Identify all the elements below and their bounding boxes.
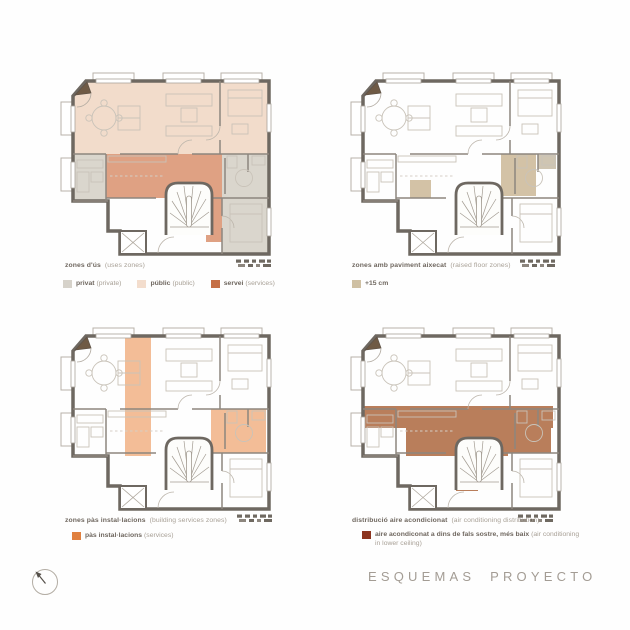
- caption-subtext: (air conditioning distribution): [451, 517, 539, 524]
- public-swatch: [137, 280, 146, 288]
- scale-bar: [520, 259, 556, 268]
- scale-bar: [237, 514, 273, 523]
- privat-swatch: [63, 280, 72, 288]
- floor-plan-building-services: [60, 321, 282, 521]
- panel-caption: zones d'ús (uses zones): [65, 262, 145, 269]
- servei-swatch: [211, 280, 220, 288]
- legend-label: pàs instal·lacions: [85, 532, 142, 539]
- legend-sublabel: (services): [144, 532, 173, 539]
- panel-caption: distribució aire acondicionat (air condi…: [352, 517, 564, 524]
- floor-plan-raised-floor: [350, 66, 572, 266]
- caption-subtext: (building services zones): [150, 517, 227, 524]
- legend-item-pas-installacions: pàs instal·lacions(services): [72, 532, 174, 540]
- legend-label: servei: [224, 280, 244, 287]
- services-swatch: [72, 532, 81, 540]
- legend-uses: privat(private) públic(public) servei(se…: [63, 280, 275, 288]
- floor-plan-ac-distribution: [350, 321, 572, 521]
- ac-swatch: [362, 531, 371, 539]
- drawing-sheet: zones d'ús (uses zones) privat(private) …: [0, 0, 630, 630]
- sheet-title: ESQUEMAS PROYECTO: [368, 569, 596, 584]
- legend-raised-floor: +15 cm: [352, 280, 388, 288]
- scale-bar: [236, 259, 272, 268]
- raised-floor-swatch: [352, 280, 361, 288]
- floor-plan-uses-zones: [60, 66, 282, 266]
- legend-label: +15 cm: [365, 280, 388, 287]
- legend-label: privat: [76, 280, 95, 287]
- legend-label: aire acondiconat a dins de fals sostre, …: [375, 531, 529, 538]
- north-arrow-icon: [27, 565, 63, 601]
- legend-sublabel: (private): [97, 280, 122, 287]
- caption-text: zones amb paviment aixecat: [352, 262, 446, 269]
- legend-item-servei: servei(services): [211, 280, 275, 288]
- panel-caption: zones amb paviment aixecat (raised floor…: [352, 262, 511, 269]
- legend-item-public: públic(public): [137, 280, 194, 288]
- caption-subtext: (uses zones): [105, 262, 145, 269]
- legend-item-15cm: +15 cm: [352, 280, 388, 288]
- panel-raised-floor: zones amb paviment aixecat (raised floor…: [350, 66, 630, 326]
- legend-ac: aire acondiconat a dins de fals sostre, …: [362, 530, 583, 548]
- legend-sublabel: (public): [172, 280, 194, 287]
- panel-ac-distribution: distribució aire acondicionat (air condi…: [350, 321, 630, 581]
- legend-label: públic: [150, 280, 170, 287]
- caption-text: zones pàs instal·lacions: [65, 517, 146, 524]
- panel-uses-zones: zones d'ús (uses zones) privat(private) …: [60, 66, 350, 326]
- caption-text: zones d'ús: [65, 262, 101, 269]
- panel-caption: zones pàs instal·lacions (building servi…: [65, 517, 227, 524]
- legend-building-services: pàs instal·lacions(services): [72, 532, 174, 540]
- legend-item-privat: privat(private): [63, 280, 121, 288]
- legend-item-ac-lowered-ceiling: aire acondiconat a dins de fals sostre, …: [362, 530, 583, 548]
- caption-text: distribució aire acondicionat: [352, 517, 447, 524]
- caption-subtext: (raised floor zones): [450, 262, 510, 269]
- panel-building-services: zones pàs instal·lacions (building servi…: [60, 321, 350, 581]
- legend-sublabel: (services): [245, 280, 274, 287]
